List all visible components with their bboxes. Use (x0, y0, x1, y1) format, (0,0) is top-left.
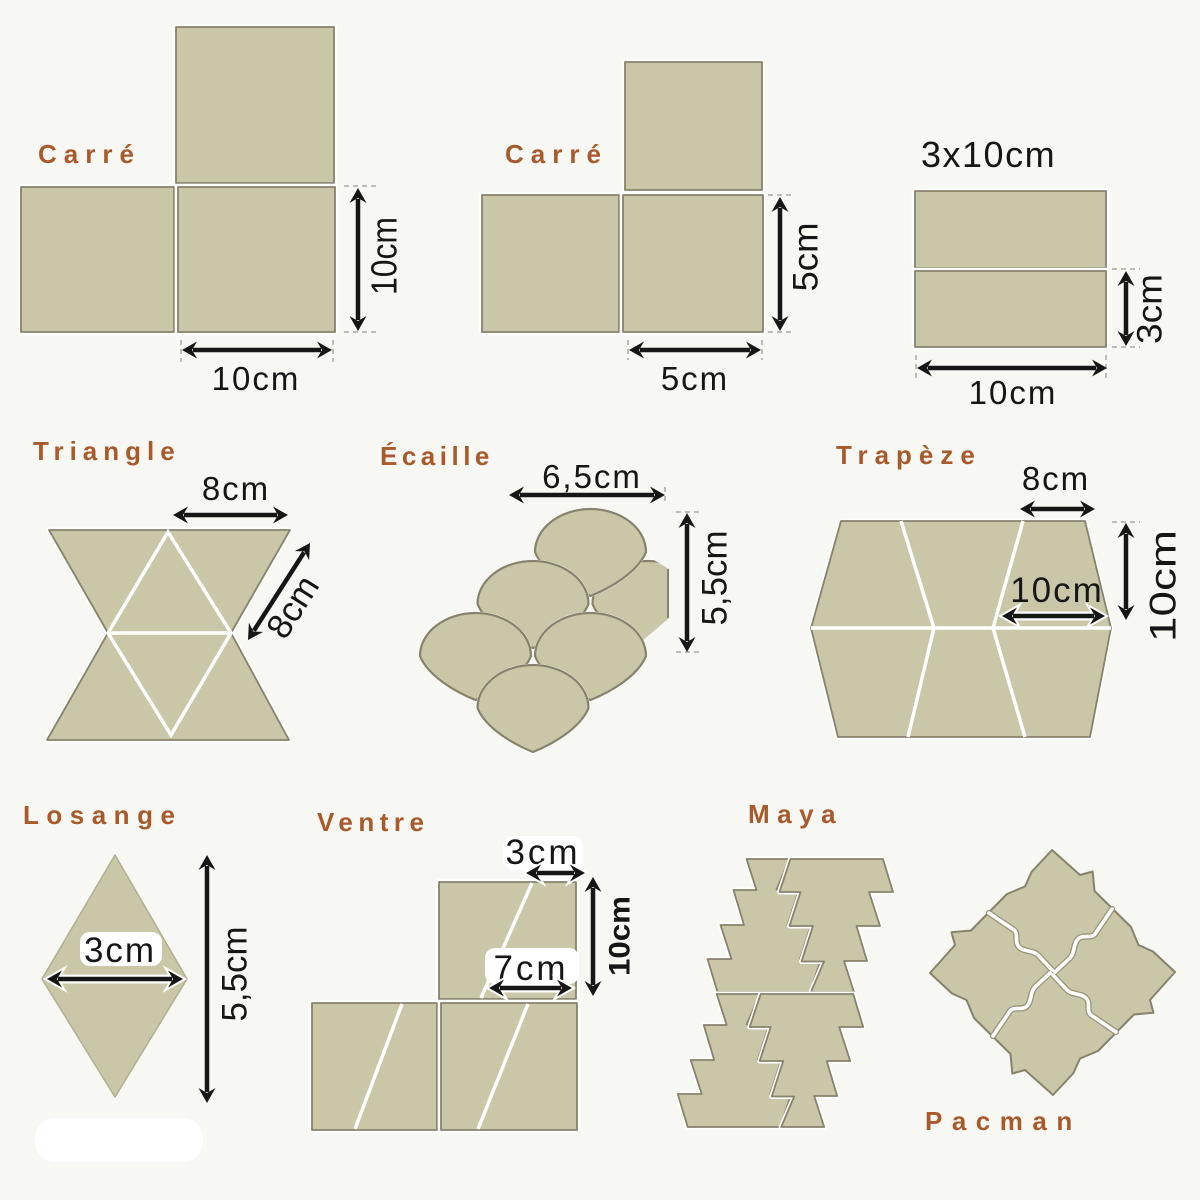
svg-text:Triangle: Triangle (33, 436, 181, 466)
svg-text:Écaille: Écaille (380, 441, 494, 471)
svg-text:10cm: 10cm (969, 374, 1058, 411)
svg-text:Pacman: Pacman (925, 1106, 1082, 1136)
svg-text:6,5cm: 6,5cm (542, 458, 642, 495)
svg-text:Carré: Carré (505, 139, 608, 169)
svg-text:10cm: 10cm (364, 217, 405, 295)
svg-text:3cm: 3cm (84, 931, 156, 970)
svg-text:Losange: Losange (23, 800, 182, 830)
svg-text:5,5cm: 5,5cm (696, 531, 735, 626)
svg-text:5cm: 5cm (661, 360, 729, 397)
svg-text:Trapèze: Trapèze (836, 440, 982, 470)
svg-text:Ventre: Ventre (317, 807, 430, 837)
svg-text:3cm: 3cm (1131, 274, 1170, 344)
svg-text:3x10cm: 3x10cm (921, 134, 1056, 175)
svg-text:10cm: 10cm (604, 896, 637, 976)
svg-text:10cm: 10cm (1143, 530, 1184, 642)
svg-text:8cm: 8cm (1022, 460, 1090, 497)
svg-text:Carré: Carré (38, 139, 141, 169)
svg-text:8cm: 8cm (202, 470, 270, 507)
svg-text:10cm: 10cm (1010, 571, 1104, 610)
svg-text:5,5cm: 5,5cm (216, 927, 255, 1022)
svg-text:Maya: Maya (748, 799, 843, 829)
svg-text:10cm: 10cm (212, 360, 301, 397)
svg-text:5cm: 5cm (787, 223, 826, 292)
